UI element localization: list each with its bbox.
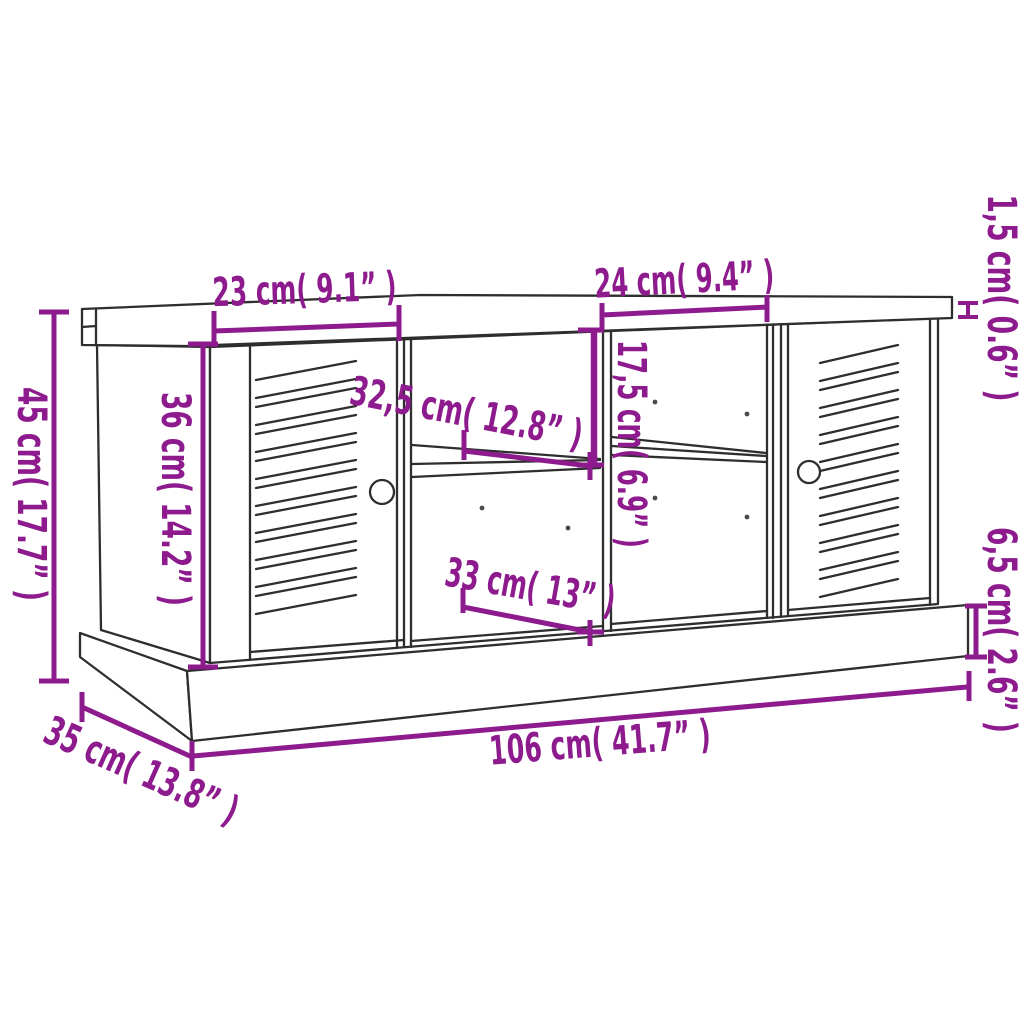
dim-plinth-height: 6,5 cm( 2.6” ): [965, 527, 1024, 733]
dim-label: 106 cm( 41.7” ): [488, 711, 713, 774]
dim-label: 17,5 cm( 6.9” ): [608, 340, 654, 548]
furniture-dimension-diagram: 23 cm( 9.1” ) 24 cm( 9.4” ) 1,5 cm( 0.6”…: [0, 0, 1024, 1024]
right-door-knob: [798, 461, 820, 483]
pin-hole: [745, 515, 750, 520]
pin-hole: [745, 412, 750, 417]
dim-label: 1,5 cm( 0.6” ): [978, 195, 1024, 402]
dim-label: 23 cm( 9.1” ): [212, 264, 397, 316]
cabinet-drawing: [80, 295, 968, 741]
dim-label: 24 cm( 9.4” ): [593, 252, 775, 307]
dim-label: 36 cm( 14.2” ): [152, 392, 198, 606]
pin-hole: [480, 506, 485, 511]
left-door-knob: [370, 480, 394, 504]
dim-line: [958, 303, 978, 317]
dim-top-thickness: 1,5 cm( 0.6” ): [958, 195, 1024, 402]
diagram-page: 23 cm( 9.1” ) 24 cm( 9.4” ) 1,5 cm( 0.6”…: [0, 0, 1024, 1024]
dim-label: 6,5 cm( 2.6” ): [978, 527, 1024, 733]
pin-hole: [566, 526, 571, 531]
dim-label: 45 cm( 17.7” ): [8, 387, 54, 601]
dim-overall-height: 45 cm( 17.7” ): [8, 312, 69, 681]
